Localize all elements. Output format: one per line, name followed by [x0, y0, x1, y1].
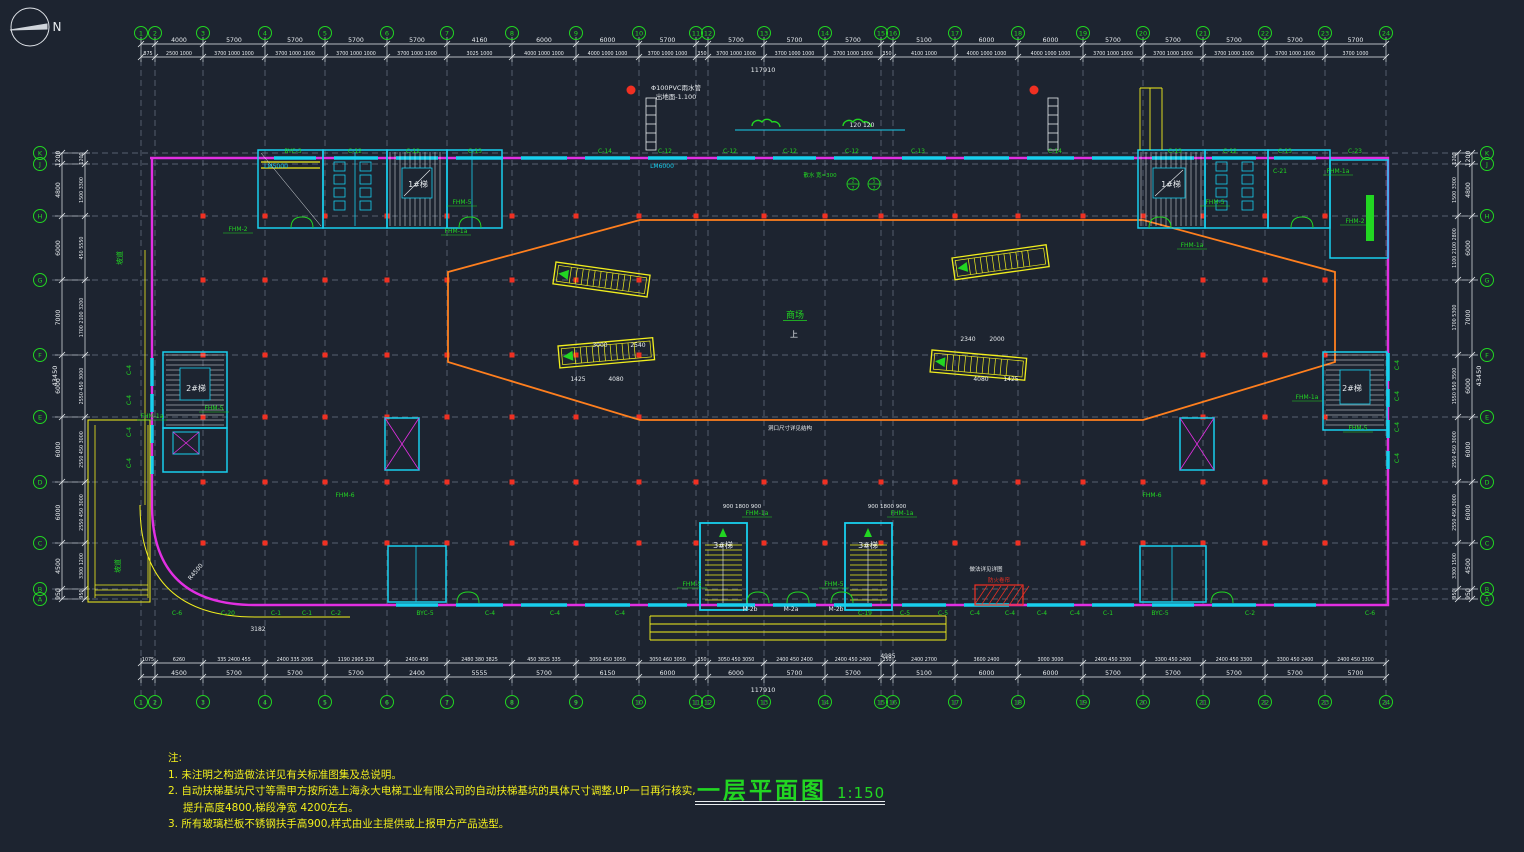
- svg-text:5: 5: [323, 29, 327, 37]
- svg-text:7: 7: [873, 186, 876, 192]
- svg-text:FHM-5: FHM-5: [204, 405, 223, 412]
- svg-text:950: 950: [1452, 589, 1458, 598]
- svg-text:6000: 6000: [536, 37, 552, 44]
- svg-text:5700: 5700: [348, 37, 364, 44]
- svg-text:1700 2100 3200: 1700 2100 3200: [79, 298, 85, 338]
- svg-text:15: 15: [877, 29, 885, 37]
- svg-text:1425: 1425: [1003, 376, 1018, 383]
- svg-text:做法详见详图: 做法详见详图: [969, 565, 1003, 573]
- svg-text:1550 950 3500: 1550 950 3500: [1452, 368, 1458, 405]
- svg-text:LM5000: LM5000: [264, 163, 288, 170]
- svg-text:4500: 4500: [171, 670, 187, 677]
- svg-text:2: 2: [153, 29, 157, 37]
- svg-text:C-4: C-4: [1394, 422, 1401, 432]
- svg-text:FHM-5: FHM-5: [452, 199, 471, 206]
- svg-text:335 2400 455: 335 2400 455: [217, 657, 251, 663]
- svg-text:E: E: [1485, 413, 1489, 421]
- svg-text:1700 5300: 1700 5300: [1452, 305, 1458, 331]
- svg-text:4500: 4500: [1465, 558, 1472, 574]
- svg-text:6000: 6000: [1465, 378, 1472, 394]
- svg-text:4000 1000 1000: 4000 1000 1000: [967, 51, 1007, 57]
- svg-text:1#梯: 1#梯: [1161, 179, 1181, 189]
- exterior-walls: [140, 158, 1388, 617]
- svg-text:FHM-1a: FHM-1a: [891, 510, 914, 517]
- svg-text:洞口尺寸详见结构: 洞口尺寸详见结构: [768, 424, 813, 432]
- svg-text:900 1800 900: 900 1800 900: [723, 504, 762, 510]
- svg-text:出地面-1.100: 出地面-1.100: [656, 92, 696, 101]
- door-swings: [291, 217, 1313, 603]
- wall-windows: [152, 158, 1388, 605]
- svg-text:J: J: [38, 160, 41, 168]
- svg-text:C-12: C-12: [348, 148, 362, 155]
- svg-text:6000: 6000: [660, 670, 676, 677]
- svg-text:2400 450 2400: 2400 450 2400: [776, 657, 813, 663]
- svg-text:4800: 4800: [1465, 182, 1472, 198]
- svg-text:1200: 1200: [1452, 152, 1458, 164]
- svg-text:16: 16: [889, 29, 897, 37]
- svg-text:24: 24: [1382, 698, 1390, 706]
- svg-text:5700: 5700: [287, 37, 303, 44]
- svg-text:D: D: [37, 478, 42, 486]
- svg-text:C-4: C-4: [1070, 610, 1080, 617]
- svg-text:FHM-5: FHM-5: [1348, 425, 1367, 432]
- svg-text:1190 2905 330: 1190 2905 330: [338, 657, 375, 663]
- svg-text:C-23: C-23: [1348, 148, 1362, 155]
- title-underline: [695, 801, 885, 802]
- svg-text:C-2: C-2: [331, 610, 341, 617]
- svg-text:6000: 6000: [979, 670, 995, 677]
- svg-text:5700: 5700: [1105, 670, 1121, 677]
- svg-text:21: 21: [1199, 29, 1207, 37]
- svg-text:6000: 6000: [55, 505, 62, 521]
- svg-text:C-21: C-21: [1273, 168, 1287, 175]
- svg-text:6000: 6000: [600, 37, 616, 44]
- svg-text:FHM-6: FHM-6: [335, 492, 354, 499]
- svg-text:G: G: [1484, 276, 1489, 284]
- svg-text:C-13: C-13: [911, 148, 925, 155]
- svg-text:C-2: C-2: [1245, 610, 1255, 617]
- svg-text:3300 1500: 3300 1500: [1452, 553, 1458, 579]
- svg-text:4985: 4985: [880, 653, 895, 660]
- svg-text:2400 450 3300: 2400 450 3300: [1337, 657, 1374, 663]
- svg-text:5700: 5700: [348, 670, 364, 677]
- svg-text:8: 8: [510, 29, 514, 37]
- svg-text:3#梯: 3#梯: [713, 540, 733, 550]
- svg-text:3#梯: 3#梯: [858, 540, 878, 550]
- svg-text:5: 5: [873, 179, 876, 185]
- svg-text:C-12: C-12: [406, 148, 420, 155]
- svg-text:14: 14: [821, 698, 829, 706]
- svg-text:M-2b: M-2b: [829, 606, 844, 613]
- svg-text:3700 1000 1000: 3700 1000 1000: [716, 51, 756, 57]
- svg-text:22: 22: [1261, 698, 1269, 706]
- svg-text:C-13: C-13: [1278, 148, 1292, 155]
- svg-text:350: 350: [697, 51, 706, 57]
- svg-text:6000: 6000: [1465, 442, 1472, 458]
- svg-text:A: A: [38, 595, 43, 603]
- notes-header: 注:: [168, 750, 696, 767]
- svg-text:5100: 5100: [916, 670, 932, 677]
- note-line-2b: 提升高度4800,梯段净宽 4200左右。: [168, 800, 696, 817]
- svg-text:10: 10: [635, 698, 643, 706]
- svg-text:14: 14: [821, 29, 829, 37]
- svg-text:2400 450 3300: 2400 450 3300: [1216, 657, 1253, 663]
- svg-text:117910: 117910: [751, 66, 776, 74]
- svg-text:R4500: R4500: [187, 562, 205, 582]
- svg-text:7: 7: [852, 186, 855, 192]
- svg-text:FHM-1a: FHM-1a: [1296, 394, 1319, 401]
- svg-text:11: 11: [692, 29, 700, 37]
- svg-text:20: 20: [1139, 698, 1147, 706]
- svg-text:4800: 4800: [55, 182, 62, 198]
- svg-text:C-4: C-4: [1394, 360, 1401, 370]
- cad-viewport[interactable]: 875107540002500 10006260450057003700 100…: [0, 0, 1524, 852]
- svg-text:17: 17: [951, 698, 959, 706]
- svg-text:Φ100PVC雨水管: Φ100PVC雨水管: [651, 83, 701, 92]
- svg-text:N: N: [53, 20, 62, 34]
- svg-text:C-5: C-5: [938, 610, 948, 617]
- svg-text:2400 450 3300: 2400 450 3300: [1095, 657, 1132, 663]
- svg-text:6000: 6000: [1043, 37, 1059, 44]
- svg-text:4160: 4160: [472, 37, 488, 44]
- svg-text:5700: 5700: [1226, 37, 1242, 44]
- svg-text:商场: 商场: [786, 309, 804, 321]
- svg-text:6000: 6000: [979, 37, 995, 44]
- svg-text:1500 3300: 1500 3300: [79, 177, 85, 203]
- svg-text:18: 18: [1014, 29, 1022, 37]
- svg-text:23: 23: [1321, 698, 1329, 706]
- svg-text:11: 11: [692, 698, 700, 706]
- svg-text:2000: 2000: [989, 336, 1004, 343]
- svg-text:950: 950: [79, 589, 85, 598]
- svg-text:2: 2: [852, 179, 855, 185]
- svg-text:C-6: C-6: [1365, 610, 1375, 617]
- plan-labels: BYC-3C-12C-12C-13C-14C-12C-12C-12C-12C-1…: [113, 83, 1401, 660]
- svg-text:7000: 7000: [1465, 310, 1472, 326]
- svg-text:3700 1000 1000: 3700 1000 1000: [275, 51, 315, 57]
- svg-text:1: 1: [139, 698, 143, 706]
- svg-text:1200: 1200: [1465, 151, 1472, 167]
- svg-text:1500 3300: 1500 3300: [1452, 177, 1458, 203]
- svg-text:C-1: C-1: [1103, 610, 1113, 617]
- svg-text:3700 1000 1000: 3700 1000 1000: [1275, 51, 1315, 57]
- svg-text:3: 3: [201, 29, 205, 37]
- svg-text:4000 1000 1000: 4000 1000 1000: [1031, 51, 1071, 57]
- svg-text:17: 17: [951, 29, 959, 37]
- svg-text:1200: 1200: [55, 151, 62, 167]
- svg-text:5700: 5700: [409, 37, 425, 44]
- svg-text:10: 10: [635, 29, 643, 37]
- svg-text:C-4: C-4: [126, 395, 133, 405]
- svg-text:3050 450 3050: 3050 450 3050: [589, 657, 626, 663]
- svg-text:C-4: C-4: [485, 610, 495, 617]
- svg-text:散水 宽=300: 散水 宽=300: [803, 171, 837, 179]
- svg-text:3: 3: [201, 698, 205, 706]
- svg-text:5: 5: [323, 698, 327, 706]
- svg-text:5700: 5700: [728, 37, 744, 44]
- svg-text:2#梯: 2#梯: [186, 383, 206, 393]
- svg-text:K: K: [1485, 149, 1490, 157]
- svg-text:12: 12: [704, 29, 712, 37]
- svg-text:3300 450 2400: 3300 450 2400: [1155, 657, 1192, 663]
- svg-text:FHM-2: FHM-2: [228, 226, 247, 233]
- general-notes: 注: 1. 未注明之构造做法详见有关标准图集及总说明。 2. 自动扶梯基坑尺寸等…: [168, 750, 696, 833]
- svg-text:350: 350: [697, 657, 706, 663]
- dimension-lines: [55, 37, 1478, 683]
- svg-text:13: 13: [760, 698, 768, 706]
- svg-text:1#梯: 1#梯: [408, 179, 428, 189]
- svg-text:2550 450 3000: 2550 450 3000: [79, 494, 85, 531]
- svg-text:5700: 5700: [1287, 37, 1303, 44]
- svg-text:C-1: C-1: [271, 610, 281, 617]
- svg-text:350: 350: [882, 51, 891, 57]
- svg-text:2400: 2400: [409, 670, 425, 677]
- svg-text:C-12: C-12: [723, 148, 737, 155]
- svg-text:坡道: 坡道: [113, 559, 122, 573]
- svg-text:D: D: [1484, 478, 1489, 486]
- svg-text:6000: 6000: [1465, 505, 1472, 521]
- svg-text:BYC-5: BYC-5: [416, 610, 433, 617]
- svg-text:C-1: C-1: [302, 610, 312, 617]
- svg-text:C-4: C-4: [550, 610, 560, 617]
- svg-text:C-19: C-19: [858, 610, 872, 617]
- svg-text:4: 4: [263, 29, 267, 37]
- svg-text:7: 7: [445, 29, 449, 37]
- svg-text:M-2b: M-2b: [743, 606, 758, 613]
- svg-text:6000: 6000: [728, 670, 744, 677]
- svg-text:FHM-1a: FHM-1a: [746, 510, 769, 517]
- svg-text:18: 18: [1014, 698, 1022, 706]
- svg-text:117910: 117910: [751, 686, 776, 694]
- svg-text:1200: 1200: [79, 152, 85, 164]
- svg-text:FHM-2: FHM-2: [1345, 218, 1364, 225]
- svg-text:上: 上: [790, 330, 798, 339]
- svg-text:19: 19: [1079, 29, 1087, 37]
- svg-text:43450: 43450: [51, 366, 59, 387]
- svg-text:2400 450: 2400 450: [406, 657, 429, 663]
- svg-text:5700: 5700: [536, 670, 552, 677]
- svg-text:5700: 5700: [226, 37, 242, 44]
- svg-text:C: C: [38, 539, 43, 547]
- svg-text:4000: 4000: [171, 37, 187, 44]
- svg-text:4: 4: [263, 698, 267, 706]
- svg-text:F: F: [1485, 351, 1489, 359]
- svg-text:A: A: [1485, 595, 1490, 603]
- svg-text:3025 1000: 3025 1000: [467, 51, 493, 57]
- svg-text:C-4: C-4: [1005, 610, 1015, 617]
- drawing-scale: 1:150: [837, 784, 885, 802]
- svg-text:19: 19: [1079, 698, 1087, 706]
- svg-text:H: H: [1485, 212, 1490, 220]
- floor-plan-canvas[interactable]: 875107540002500 10006260450057003700 100…: [0, 0, 1524, 852]
- svg-text:950: 950: [55, 588, 62, 600]
- svg-text:120 120: 120 120: [850, 122, 875, 129]
- svg-text:6000: 6000: [55, 240, 62, 256]
- svg-text:4080: 4080: [608, 376, 623, 383]
- svg-text:F: F: [38, 351, 42, 359]
- svg-text:C-4: C-4: [126, 427, 133, 437]
- svg-text:4080: 4080: [973, 376, 988, 383]
- svg-text:2550 450 3000: 2550 450 3000: [1452, 494, 1458, 531]
- svg-text:C-12: C-12: [1223, 148, 1237, 155]
- svg-text:2400 335 2065: 2400 335 2065: [277, 657, 314, 663]
- svg-text:FHM-5: FHM-5: [1205, 199, 1224, 206]
- svg-text:3600 2400: 3600 2400: [974, 657, 1000, 663]
- svg-text:5700: 5700: [1165, 37, 1181, 44]
- svg-text:3000: 3000: [592, 342, 607, 349]
- svg-text:5700: 5700: [226, 670, 242, 677]
- note-line-1: 1. 未注明之构造做法详见有关标准图集及总说明。: [168, 767, 696, 784]
- svg-text:C-12: C-12: [783, 148, 797, 155]
- svg-text:C-4: C-4: [1394, 391, 1401, 401]
- svg-text:13: 13: [760, 29, 768, 37]
- svg-text:3700 1000 1000: 3700 1000 1000: [775, 51, 815, 57]
- site-symbols: [627, 86, 1059, 606]
- svg-text:FHM-1a: FHM-1a: [1327, 168, 1350, 175]
- svg-text:450 3825 335: 450 3825 335: [527, 657, 561, 663]
- svg-text:5555: 5555: [472, 670, 488, 677]
- svg-text:5700: 5700: [1348, 37, 1364, 44]
- svg-text:5700: 5700: [787, 670, 803, 677]
- svg-text:12: 12: [704, 698, 712, 706]
- svg-text:8: 8: [510, 698, 514, 706]
- escalator: [553, 262, 650, 297]
- svg-text:LM6000: LM6000: [650, 163, 674, 170]
- svg-text:3700 1000 1000: 3700 1000 1000: [397, 51, 437, 57]
- svg-text:5700: 5700: [1165, 670, 1181, 677]
- svg-text:5700: 5700: [1348, 670, 1364, 677]
- svg-text:C-4: C-4: [615, 610, 625, 617]
- svg-text:7000: 7000: [55, 310, 62, 326]
- svg-text:C-5: C-5: [900, 610, 910, 617]
- svg-text:3700 1000 1000: 3700 1000 1000: [833, 51, 873, 57]
- svg-text:4000 1000 1000: 4000 1000 1000: [524, 51, 564, 57]
- svg-text:3050 460 3050: 3050 460 3050: [649, 657, 686, 663]
- svg-text:9: 9: [574, 698, 578, 706]
- svg-text:防火卷帘: 防火卷帘: [988, 576, 1011, 584]
- svg-text:22: 22: [1261, 29, 1269, 37]
- svg-text:4100 1000: 4100 1000: [911, 51, 937, 57]
- svg-text:2#梯: 2#梯: [1342, 383, 1362, 393]
- svg-text:C-4: C-4: [126, 458, 133, 468]
- svg-text:3300 450 2400: 3300 450 2400: [1277, 657, 1314, 663]
- svg-text:3700 1000 1000: 3700 1000 1000: [1153, 51, 1193, 57]
- svg-text:2400 2700: 2400 2700: [911, 657, 937, 663]
- svg-text:3700 1000: 3700 1000: [1343, 51, 1369, 57]
- svg-text:坡道: 坡道: [115, 251, 124, 265]
- svg-text:6000: 6000: [1465, 240, 1472, 256]
- note-line-3: 3. 所有玻璃栏板不锈钢扶手高900,样式由业主提供或上报甲方产品选型。: [168, 816, 696, 833]
- svg-text:C-13: C-13: [468, 148, 482, 155]
- svg-text:23: 23: [1321, 29, 1329, 37]
- svg-text:2550 450 3000: 2550 450 3000: [79, 431, 85, 468]
- svg-text:K: K: [38, 149, 43, 157]
- svg-text:875: 875: [143, 51, 152, 57]
- drawing-title: 一层平面图1:150: [697, 771, 885, 805]
- svg-text:M-2a: M-2a: [784, 606, 799, 613]
- svg-text:3700 1000 1000: 3700 1000 1000: [1093, 51, 1133, 57]
- svg-text:FHM-1a: FHM-1a: [141, 413, 164, 420]
- svg-text:2400 450 2400: 2400 450 2400: [835, 657, 872, 663]
- svg-text:5700: 5700: [845, 670, 861, 677]
- svg-text:2540: 2540: [630, 342, 645, 349]
- svg-text:1075: 1075: [142, 657, 154, 663]
- svg-text:C-14: C-14: [598, 148, 612, 155]
- svg-text:C-20: C-20: [221, 610, 235, 617]
- north-arrow: N: [10, 8, 61, 46]
- svg-text:6000: 6000: [55, 442, 62, 458]
- svg-text:2550 450 3000: 2550 450 3000: [79, 368, 85, 405]
- svg-text:E: E: [38, 413, 42, 421]
- svg-text:FHM-5: FHM-5: [824, 581, 843, 588]
- svg-text:5700: 5700: [1287, 670, 1303, 677]
- svg-text:C-12: C-12: [658, 148, 672, 155]
- title-underline-2: [695, 804, 885, 805]
- svg-text:4500: 4500: [55, 558, 62, 574]
- svg-text:3000 3000: 3000 3000: [1038, 657, 1064, 663]
- svg-text:2480 380 3825: 2480 380 3825: [461, 657, 498, 663]
- svg-text:20: 20: [1139, 29, 1147, 37]
- svg-text:6: 6: [385, 29, 389, 37]
- svg-text:C-12: C-12: [845, 148, 859, 155]
- svg-text:16: 16: [889, 698, 897, 706]
- svg-text:C-14: C-14: [1048, 148, 1062, 155]
- svg-text:3300 1200: 3300 1200: [79, 553, 85, 579]
- svg-text:2340: 2340: [960, 336, 975, 343]
- svg-text:C-4: C-4: [970, 610, 980, 617]
- svg-text:5700: 5700: [1226, 670, 1242, 677]
- svg-text:5700: 5700: [845, 37, 861, 44]
- svg-text:21: 21: [1199, 698, 1207, 706]
- svg-text:6260: 6260: [173, 657, 185, 663]
- svg-text:J: J: [1485, 160, 1488, 168]
- svg-text:FHM-1a: FHM-1a: [445, 228, 468, 235]
- svg-text:C-4: C-4: [1394, 453, 1401, 463]
- svg-text:C-6: C-6: [172, 610, 182, 617]
- svg-text:3700 1000 1000: 3700 1000 1000: [1214, 51, 1254, 57]
- svg-text:1425: 1425: [570, 376, 585, 383]
- note-line-2: 2. 自动扶梯基坑尺寸等需甲方按所选上海永大电梯工业有限公司的自动扶梯基坑的具体…: [168, 783, 696, 800]
- svg-text:2: 2: [153, 698, 157, 706]
- svg-text:5700: 5700: [787, 37, 803, 44]
- svg-text:BYC-5: BYC-5: [1151, 610, 1168, 617]
- svg-text:1100 2100 2800: 1100 2100 2800: [1452, 228, 1458, 268]
- svg-text:H: H: [38, 212, 43, 220]
- svg-text:9: 9: [574, 29, 578, 37]
- svg-text:5700: 5700: [660, 37, 676, 44]
- svg-text:C: C: [1485, 539, 1490, 547]
- svg-text:6000: 6000: [1043, 670, 1059, 677]
- svg-text:15: 15: [877, 698, 885, 706]
- svg-text:FHM-5: FHM-5: [682, 581, 701, 588]
- svg-text:5700: 5700: [1105, 37, 1121, 44]
- svg-text:7: 7: [445, 698, 449, 706]
- svg-text:3700 1000 1000: 3700 1000 1000: [648, 51, 688, 57]
- svg-text:6: 6: [385, 698, 389, 706]
- svg-text:950: 950: [1465, 588, 1472, 600]
- svg-text:5100: 5100: [916, 37, 932, 44]
- svg-text:C-4: C-4: [1037, 610, 1047, 617]
- svg-text:BYC-3: BYC-3: [284, 148, 301, 155]
- svg-text:43450: 43450: [1475, 366, 1483, 387]
- svg-text:3050 450 3050: 3050 450 3050: [718, 657, 755, 663]
- svg-text:450 5550: 450 5550: [79, 237, 85, 260]
- svg-text:G: G: [37, 276, 42, 284]
- svg-text:FHM-6: FHM-6: [1142, 492, 1161, 499]
- svg-text:3182: 3182: [250, 626, 265, 633]
- svg-text:5700: 5700: [287, 670, 303, 677]
- svg-text:C-13: C-13: [1168, 148, 1182, 155]
